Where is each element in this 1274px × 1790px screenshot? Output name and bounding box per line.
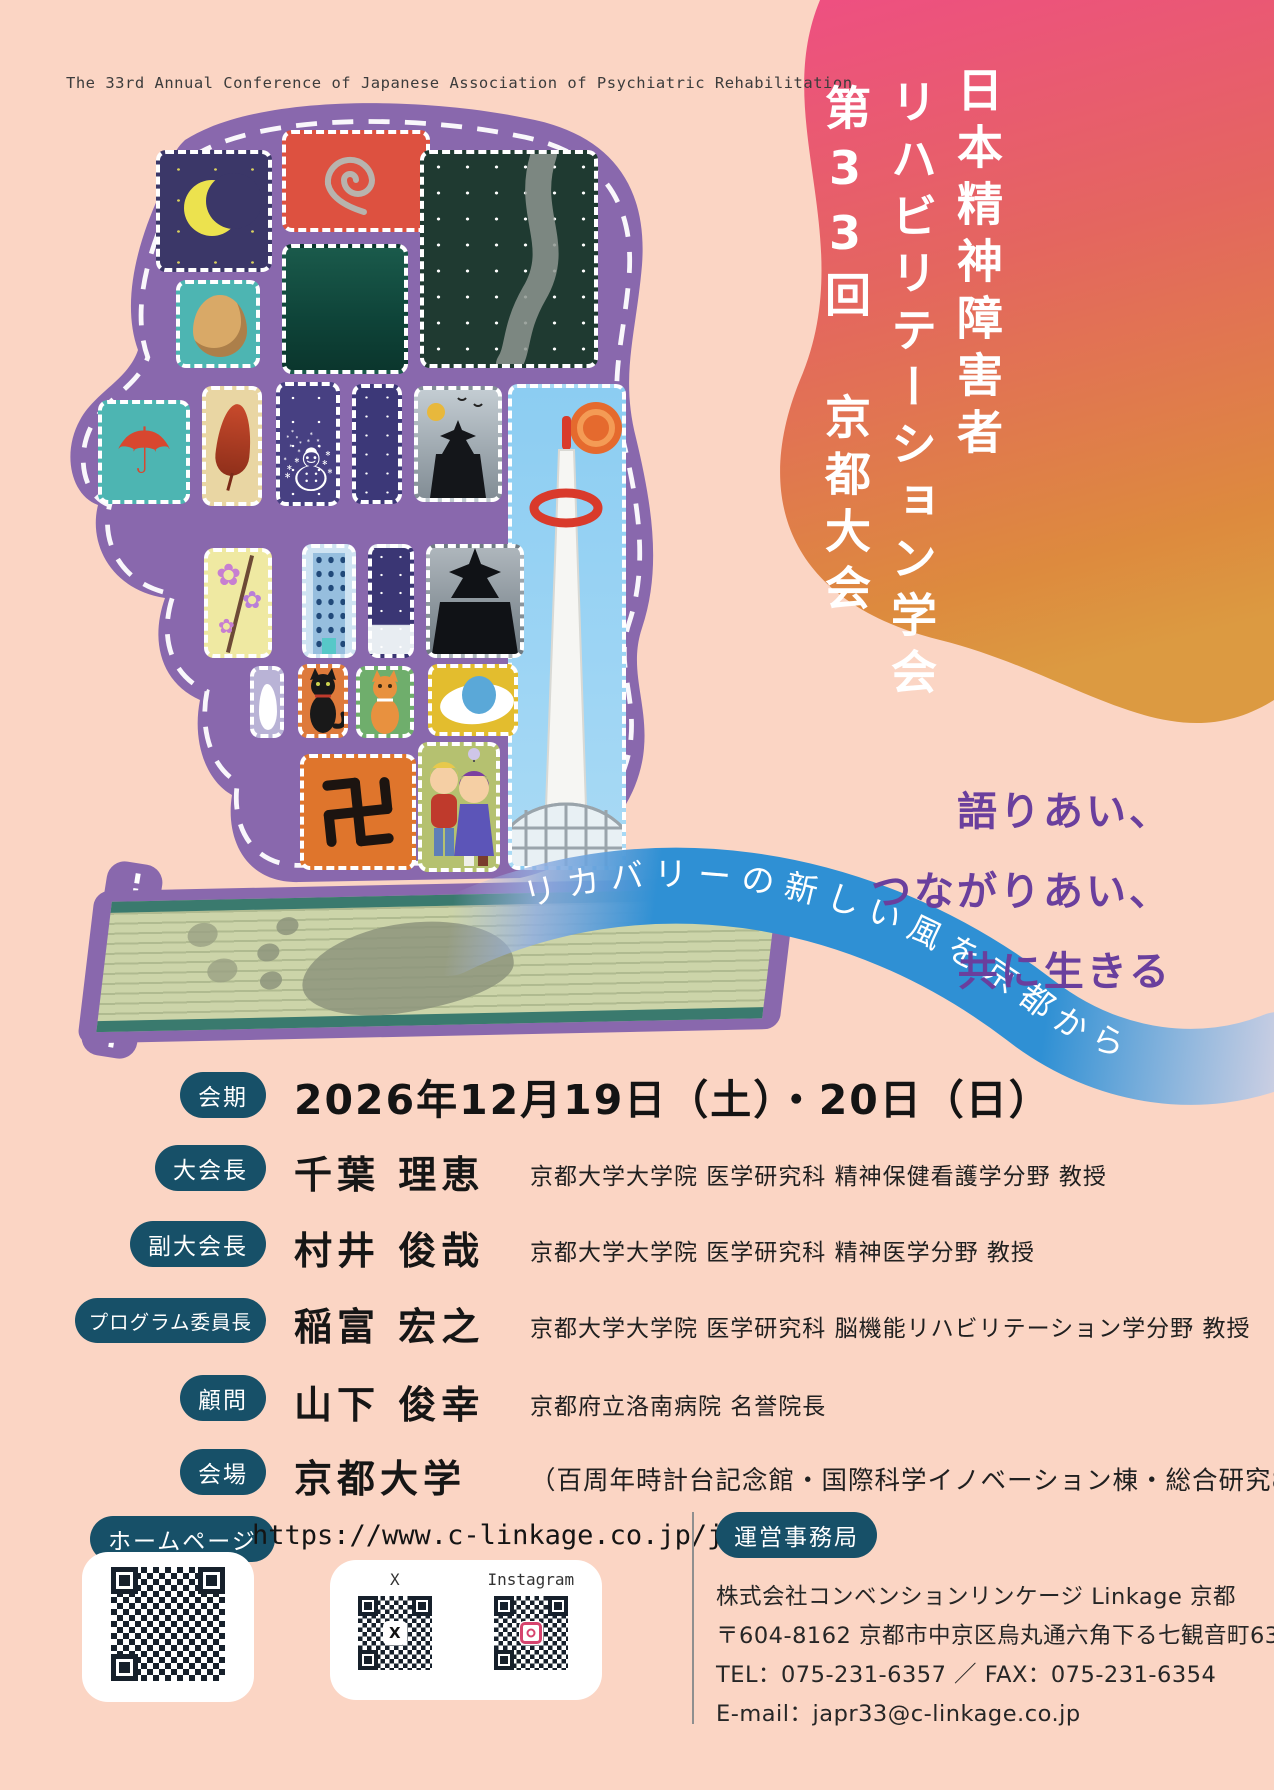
footprint-icon	[302, 910, 515, 1026]
cherry-blossom-tile	[204, 548, 272, 658]
x-qr-code: X	[358, 1596, 432, 1670]
website-qr-panel	[82, 1552, 254, 1702]
x-qr-column: X X	[358, 1570, 432, 1700]
x-label: X	[390, 1570, 400, 1589]
instagram-logo-icon	[519, 1621, 543, 1645]
title-line-2: リハビリテーション学会	[878, 78, 944, 776]
two-friends-tile	[418, 742, 500, 872]
president-name: 千葉 理恵	[294, 1144, 522, 1199]
venue-row: 会場 京都大学 （百周年時計台記念館・国際科学イノベーション棟・総合研究8号館）	[80, 1448, 1274, 1503]
blossom-icon	[218, 614, 235, 638]
spiral-icon	[286, 134, 426, 228]
snowy-river-night-tile	[420, 150, 598, 368]
orange-cat-tile	[356, 666, 414, 738]
main-title-vertical: 日本精神障害者 リハビリテーション学会 第33回 京都大会	[812, 66, 1010, 776]
catchphrase: 語りあい、 つながりあい、 共に生きる	[871, 772, 1172, 1012]
schedule-row: 会期 2026年12月19日（土）・20日（日）	[80, 1066, 1052, 1126]
kyoto-tower-icon	[512, 388, 622, 866]
president-row: 大会長 千葉 理恵 京都大学大学院 医学研究科 精神保健看護学分野 教授	[80, 1144, 1107, 1199]
vice-president-affiliation: 京都大学大学院 医学研究科 精神医学分野 教授	[530, 1233, 1035, 1275]
conference-dates: 2026年12月19日（土）・20日（日）	[294, 1066, 1052, 1126]
secretariat-badge: 運営事務局	[716, 1512, 877, 1558]
two-friends-icon	[422, 746, 496, 868]
spiral-tile	[282, 130, 430, 232]
manji-symbol-tile	[300, 754, 416, 870]
catchphrase-line-1: 語りあい、	[871, 772, 1172, 852]
manji-icon	[312, 766, 404, 858]
website-qr-code	[111, 1567, 225, 1681]
pagoda-silhouette-icon	[430, 548, 520, 654]
venue-badge: 会場	[180, 1449, 266, 1495]
autumn-leaf-tile	[202, 386, 262, 506]
instagram-camera-icon	[520, 1622, 542, 1644]
black-cat-tile	[298, 664, 348, 738]
office-building-tile	[302, 544, 356, 658]
secretariat-phone: TEL：075-231-6357 ／ FAX：075-231-6354	[716, 1656, 1274, 1695]
night-snow-tile	[368, 544, 414, 658]
program-chair-badge: プログラム委員長	[75, 1298, 266, 1343]
secretariat-company: 株式会社コンベンションリンケージ Linkage 京都	[716, 1578, 1274, 1617]
balloon-icon	[462, 676, 496, 714]
building-icon	[313, 553, 345, 654]
river-icon	[424, 154, 594, 364]
black-cat-icon	[302, 668, 344, 734]
president-affiliation: 京都大学大学院 医学研究科 精神保健看護学分野 教授	[530, 1157, 1107, 1199]
crescent-moon-tile	[156, 150, 272, 272]
advisor-row: 顧問 山下 俊幸 京都府立洛南病院 名誉院長	[80, 1374, 826, 1429]
rabbit-tile	[250, 666, 284, 738]
advisor-badge: 顧問	[180, 1375, 266, 1421]
snowman-tile	[276, 382, 340, 506]
starry-night-tile	[352, 384, 402, 504]
advisor-name: 山下 俊幸	[294, 1374, 522, 1429]
program-chair-affiliation: 京都大学大学院 医学研究科 脳機能リハビリテーション学分野 教授	[530, 1309, 1250, 1351]
leaf-icon	[213, 402, 254, 477]
x-logo-icon: X	[383, 1621, 407, 1645]
instagram-label: Instagram	[487, 1570, 574, 1589]
paper-umbrella-tile	[98, 400, 190, 504]
mountain-tile	[282, 244, 408, 374]
program-chair-row: プログラム委員長 稲富 宏之 京都大学大学院 医学研究科 脳機能リハビリテーショ…	[80, 1296, 1250, 1351]
vice-president-badge: 副大会長	[130, 1221, 266, 1267]
poster-canvas: The 33rd Annual Conference of Japanese A…	[0, 0, 1274, 1790]
vice-president-row: 副大会長 村井 俊哉 京都大学大学院 医学研究科 精神医学分野 教授	[80, 1220, 1035, 1275]
footer-divider	[692, 1512, 694, 1724]
egg-icon	[193, 295, 247, 357]
advisor-affiliation: 京都府立洛南病院 名誉院長	[530, 1387, 826, 1429]
venue-name: 京都大学	[294, 1448, 522, 1503]
social-qr-panel: X X Instagram	[330, 1560, 602, 1700]
instagram-qr-code	[494, 1596, 568, 1670]
blossom-icon	[216, 558, 241, 593]
pagoda-icon	[418, 390, 498, 498]
kyoto-tower-tile	[508, 384, 626, 870]
orange-cat-icon	[360, 670, 410, 734]
pagoda-silhouette-tile	[426, 544, 524, 658]
title-line-3: 第33回 京都大会	[812, 84, 878, 776]
pagoda-in-clouds-tile	[414, 386, 502, 502]
blossom-icon	[242, 586, 262, 614]
program-chair-name: 稲富 宏之	[294, 1296, 522, 1351]
secretariat-email: E-mail：japr33@c-linkage.co.jp	[716, 1695, 1274, 1734]
tatami-frame	[77, 876, 797, 1043]
vice-president-name: 村井 俊哉	[294, 1220, 522, 1275]
title-line-1: 日本精神障害者	[944, 66, 1010, 776]
tatami-footprint-tile	[96, 888, 777, 1032]
venue-buildings: （百周年時計台記念館・国際科学イノベーション棟・総合研究8号館）	[530, 1460, 1274, 1503]
catchphrase-line-2: つながりあい、	[871, 852, 1172, 932]
schedule-badge: 会期	[180, 1072, 266, 1118]
secretariat-address: 〒604-8162 京都市中京区烏丸通六角下る七観音町634	[716, 1617, 1274, 1656]
catchphrase-line-3: 共に生きる	[871, 932, 1172, 1012]
balloon-eye-tile	[428, 664, 518, 736]
secretariat-info: 株式会社コンベンションリンケージ Linkage 京都 〒604-8162 京都…	[716, 1578, 1274, 1734]
egg-tile	[176, 280, 260, 368]
president-badge: 大会長	[155, 1145, 266, 1191]
instagram-qr-column: Instagram	[487, 1570, 574, 1700]
